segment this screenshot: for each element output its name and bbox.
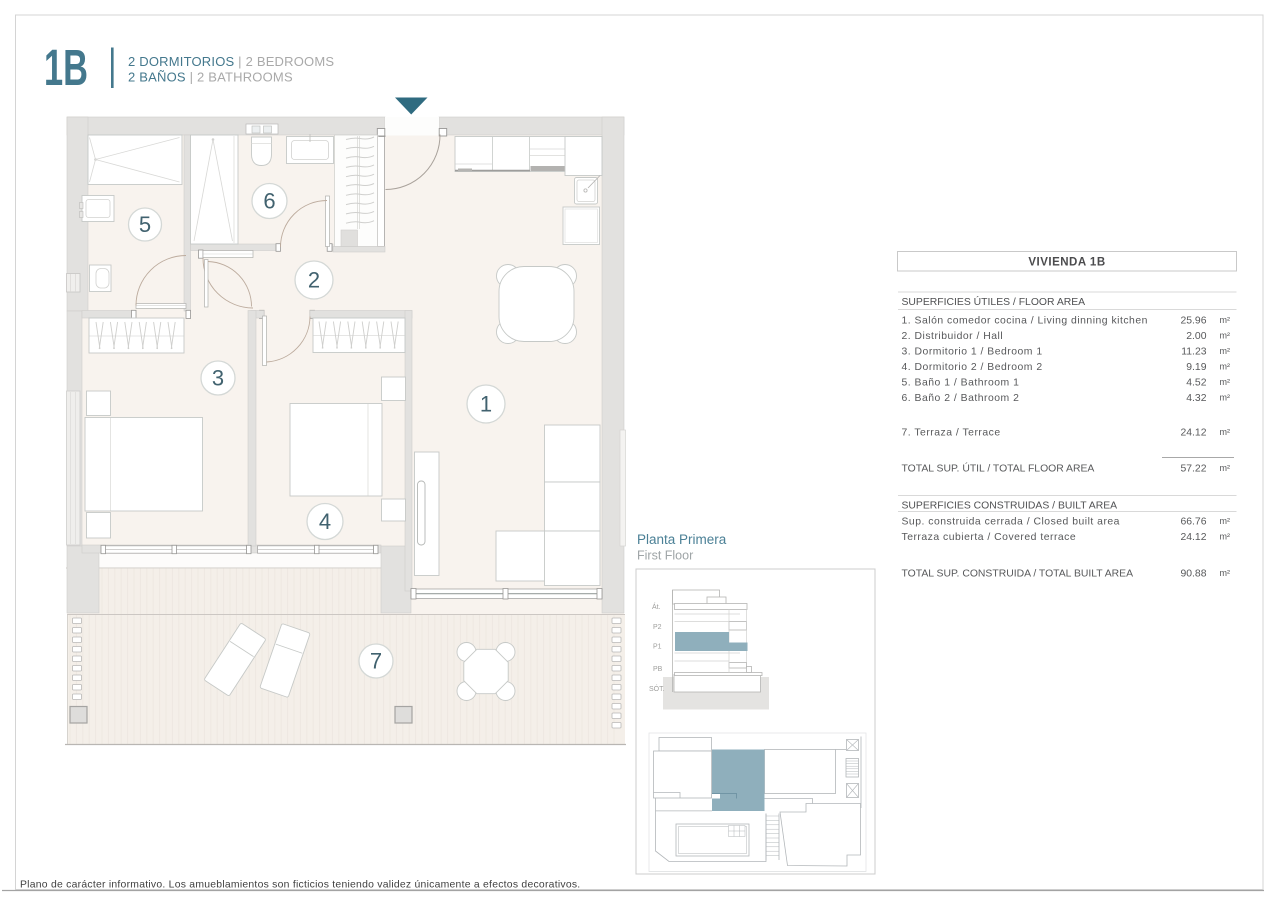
svg-text:4.32: 4.32 [1186,393,1206,404]
svg-text:5. Baño 1 / Bathroom 1: 5. Baño 1 / Bathroom 1 [902,377,1020,388]
svg-text:SUPERFICIES CONSTRUIDAS / BUIL: SUPERFICIES CONSTRUIDAS / BUILT AREA [902,501,1118,512]
svg-text:2 BAÑOS | 2 BATHROOMS: 2 BAÑOS | 2 BATHROOMS [128,70,293,85]
svg-text:1: 1 [480,392,492,417]
svg-text:m²: m² [1220,516,1231,526]
svg-text:First Floor: First Floor [637,549,693,563]
svg-text:TOTAL SUP. ÚTIL / TOTAL FLOOR: TOTAL SUP. ÚTIL / TOTAL FLOOR AREA [902,462,1095,475]
svg-text:7. Terraza / Terrace: 7. Terraza / Terrace [902,428,1001,439]
svg-text:SÓT.: SÓT. [649,684,665,693]
svg-text:m²: m² [1220,393,1231,403]
svg-text:m²: m² [1220,427,1231,437]
svg-text:m²: m² [1220,463,1231,473]
svg-text:1B: 1B [44,39,88,96]
svg-text:24.12: 24.12 [1180,428,1206,439]
svg-text:2.00: 2.00 [1186,331,1206,342]
svg-text:3: 3 [212,366,224,391]
svg-text:24.12: 24.12 [1180,532,1206,543]
svg-text:m²: m² [1220,315,1231,325]
svg-text:90.88: 90.88 [1180,569,1206,580]
svg-text:Át.: Át. [652,602,661,611]
svg-text:25.96: 25.96 [1180,316,1206,327]
svg-text:66.76: 66.76 [1180,517,1206,528]
svg-text:Plano de carácter informativo.: Plano de carácter informativo. Los amueb… [20,880,580,891]
svg-text:3. Dormitorio 1 / Bedroom 1: 3. Dormitorio 1 / Bedroom 1 [902,347,1043,358]
svg-text:4: 4 [319,509,331,534]
svg-text:9.19: 9.19 [1186,362,1206,373]
svg-text:PB: PB [653,666,663,673]
svg-text:VIVIENDA 1B: VIVIENDA 1B [1028,257,1105,269]
svg-text:m²: m² [1220,377,1231,387]
svg-text:2 DORMITORIOS | 2 BEDROOMS: 2 DORMITORIOS | 2 BEDROOMS [128,54,334,69]
svg-text:4. Dormitorio 2 / Bedroom 2: 4. Dormitorio 2 / Bedroom 2 [902,362,1043,373]
svg-text:Sup. construida cerrada / Clos: Sup. construida cerrada / Closed built a… [902,517,1120,528]
svg-text:m²: m² [1220,568,1231,578]
svg-text:6. Baño 2 / Bathroom 2: 6. Baño 2 / Bathroom 2 [902,393,1020,404]
svg-text:TOTAL SUP. CONSTRUIDA / TOTAL: TOTAL SUP. CONSTRUIDA / TOTAL BUILT AREA [902,569,1134,580]
svg-text:2. Distribuidor / Hall: 2. Distribuidor / Hall [902,331,1004,342]
svg-text:1. Salón comedor cocina / Livi: 1. Salón comedor cocina / Living dinning… [902,316,1148,327]
svg-text:P1: P1 [653,644,662,651]
svg-text:2: 2 [308,268,320,293]
svg-text:11.23: 11.23 [1181,347,1206,358]
svg-text:m²: m² [1220,331,1231,341]
svg-text:4.52: 4.52 [1186,377,1206,388]
svg-text:7: 7 [370,649,382,674]
svg-text:Planta Primera: Planta Primera [637,532,727,547]
svg-text:m²: m² [1220,532,1231,542]
svg-text:SUPERFICIES ÚTILES / FLOOR ARE: SUPERFICIES ÚTILES / FLOOR AREA [902,295,1086,308]
svg-text:5: 5 [139,212,151,237]
svg-text:57.22: 57.22 [1180,464,1206,475]
svg-text:m²: m² [1220,346,1231,356]
svg-text:Terraza cubierta / Covered ter: Terraza cubierta / Covered terrace [902,532,1077,543]
svg-text:P2: P2 [653,624,662,631]
svg-text:6: 6 [263,189,275,214]
svg-text:m²: m² [1220,362,1231,372]
